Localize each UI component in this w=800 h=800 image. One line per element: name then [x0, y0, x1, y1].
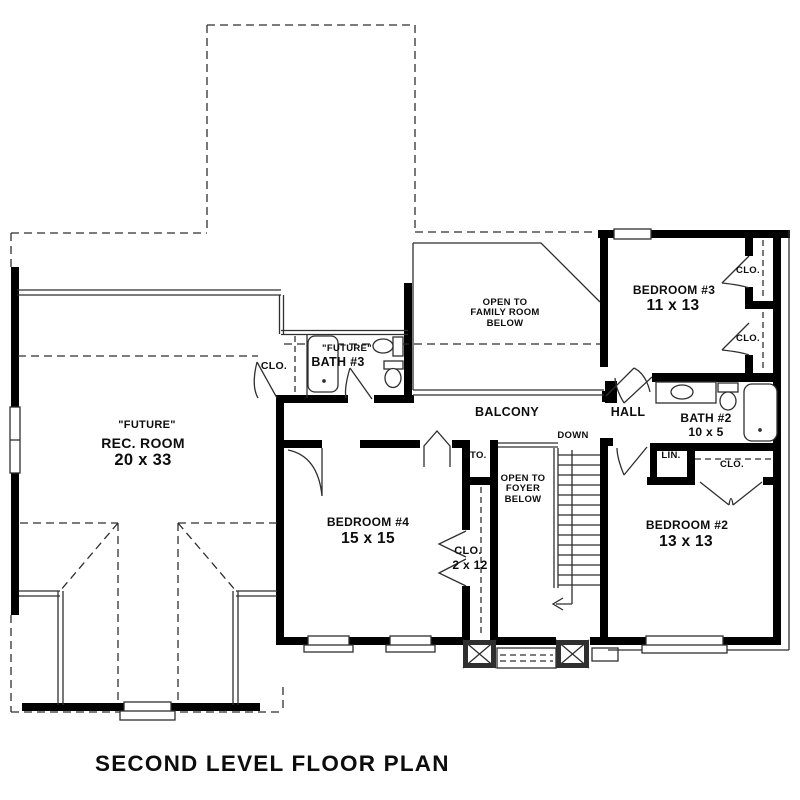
bedroom2-dims: 13 x 13	[659, 534, 713, 551]
bedroom4-door	[288, 448, 322, 496]
page-title: SECOND LEVEL FLOOR PLAN	[95, 751, 450, 777]
window	[614, 229, 651, 239]
bedroom3-dims: 11 x 13	[647, 298, 700, 315]
bedroom3-closet-top-label: CLO.	[736, 266, 760, 276]
bath2-dims: 10 x 5	[688, 426, 723, 439]
stairs-down-label: DOWN	[557, 431, 588, 441]
rec-room-tag: "FUTURE"	[118, 420, 175, 432]
hall-label: HALL	[611, 406, 646, 420]
roof-dashed-outline	[11, 25, 600, 712]
bedroom3-label: BEDROOM #3	[633, 284, 715, 297]
sink-icon	[373, 339, 393, 353]
sink-icon	[671, 385, 693, 399]
window-sill	[120, 711, 175, 720]
window-sill	[642, 645, 727, 653]
bedroom3-closet-bottom-label: CLO.	[736, 334, 760, 344]
tub-drain-icon	[323, 380, 325, 382]
bath3-label: BATH #3	[311, 356, 364, 370]
vanity-icon	[393, 337, 403, 356]
stair-treads	[558, 455, 600, 585]
toilet-bowl-icon	[720, 392, 736, 410]
window-sill	[386, 645, 435, 652]
bedroom4-dims: 15 x 15	[341, 531, 395, 548]
bath3-closet-label: CLO.	[261, 361, 287, 372]
open-to-family-label: OPEN TO FAMILY ROOM BELOW	[470, 298, 539, 329]
bedroom2-closet-doors	[700, 482, 762, 505]
rec-room-dims: 20 x 33	[114, 452, 171, 470]
bath3-door	[346, 368, 373, 399]
linen-label: LIN.	[661, 451, 680, 461]
bedroom4-closet-label: CLO.	[454, 546, 481, 558]
bedroom2-door	[617, 447, 647, 475]
rec-room-label: REC. ROOM	[101, 436, 185, 451]
hearth-outline	[497, 648, 556, 668]
toilet-bowl-icon	[385, 369, 401, 388]
toilet-tank-icon	[384, 361, 403, 369]
bedroom2-closet-label: CLO.	[720, 460, 744, 470]
bedroom3-door	[606, 368, 650, 396]
open-to-foyer-label: OPEN TO FOYER BELOW	[501, 474, 546, 505]
tub-icon	[744, 384, 777, 441]
rec-room-north-wall	[17, 290, 284, 334]
stair-down-arrow	[553, 450, 572, 610]
bath3-tag: "FUTURE"	[322, 344, 372, 354]
storage-door	[424, 431, 450, 467]
floor-plan: "FUTURE" REC. ROOM 20 x 33 CLO. "FUTURE"…	[0, 0, 800, 800]
tub-drain-icon	[759, 429, 761, 431]
window-sill	[304, 645, 353, 652]
bedroom2-label: BEDROOM #2	[646, 519, 728, 532]
bath2-label: BATH #2	[680, 412, 731, 425]
dormer-walls	[19, 591, 277, 705]
balcony-label: BALCONY	[475, 406, 539, 420]
toilet-tank-icon	[718, 383, 738, 392]
stair-rails	[498, 443, 558, 588]
storage-label: STO.	[463, 451, 486, 461]
floor-plan-drawing	[0, 0, 800, 800]
bedroom4-closet-dims: 2 x 12	[452, 559, 487, 572]
chimney-chases	[463, 640, 618, 668]
balcony-rail	[413, 390, 604, 395]
bedroom4-label: BEDROOM #4	[327, 516, 409, 529]
